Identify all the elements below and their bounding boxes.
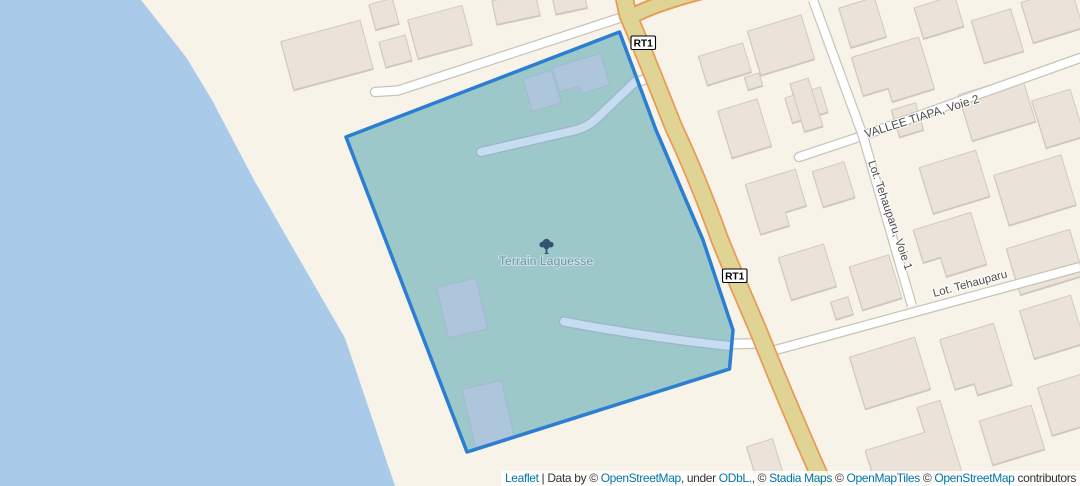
svg-text:RT1: RT1	[634, 39, 654, 50]
svg-text:Terrain Laguesse: Terrain Laguesse	[499, 254, 593, 268]
svg-text:RT1: RT1	[725, 272, 745, 283]
